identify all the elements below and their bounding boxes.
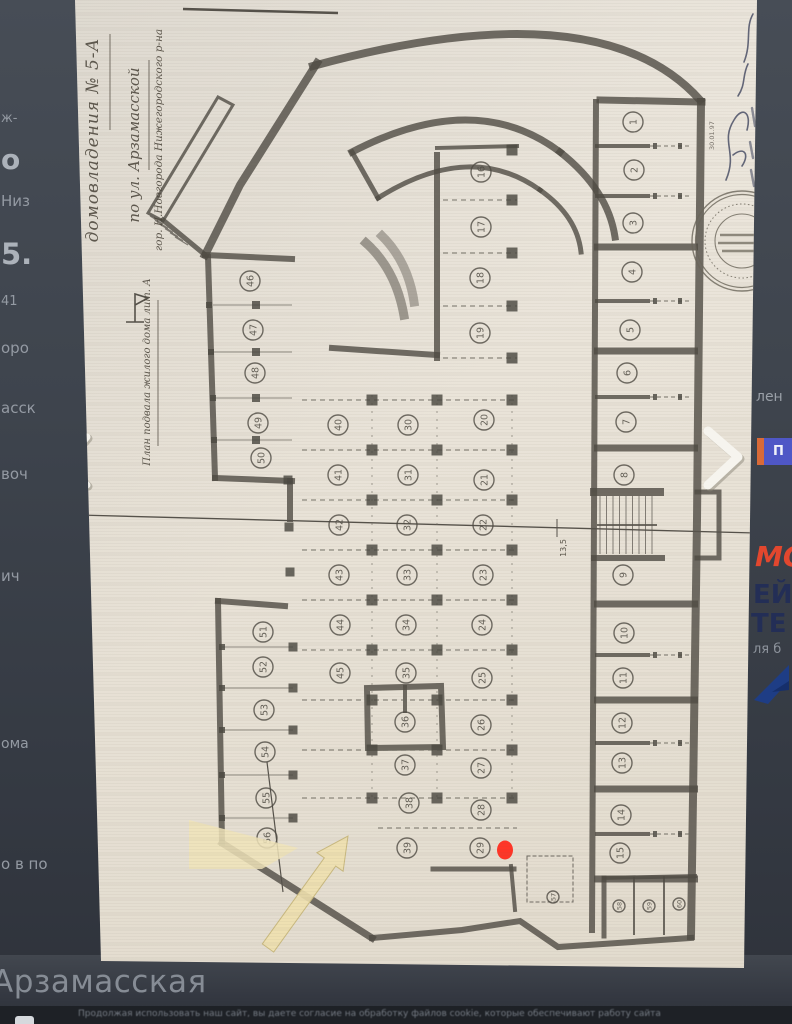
stall-number: 6 [617, 363, 637, 383]
svg-text:27: 27 [476, 762, 487, 774]
svg-text:1: 1 [628, 119, 639, 125]
stall-number: 38 [399, 793, 419, 813]
stall-number: 25 [472, 668, 492, 688]
svg-text:15: 15 [615, 847, 626, 859]
stall-number: 37 [395, 755, 415, 775]
svg-text:51: 51 [258, 626, 269, 638]
svg-text:11: 11 [618, 672, 629, 684]
page-text-fragment: ома [1, 737, 29, 751]
stall-number: 7 [616, 412, 636, 432]
svg-text:46: 46 [245, 275, 256, 287]
page-text-fragment: асск [1, 401, 36, 416]
page-text-fragment: Низ [1, 194, 30, 209]
handwritten-signature [726, 14, 755, 186]
stall-number: 5 [620, 320, 640, 340]
stall-number: 9 [613, 565, 633, 585]
svg-text:43: 43 [334, 569, 345, 581]
floorplan-image[interactable]: 1234567891011121314151617181920212223242… [0, 0, 792, 1024]
stall-number: 1 [623, 112, 643, 132]
stall-number: 28 [471, 800, 491, 820]
svg-text:59: 59 [645, 902, 653, 910]
stall-number: 34 [396, 615, 416, 635]
prev-image-button[interactable] [56, 428, 96, 492]
svg-text:23: 23 [478, 569, 489, 581]
location-marker [497, 841, 513, 860]
svg-text:8: 8 [619, 472, 630, 478]
stall-number: 20 [474, 410, 494, 430]
stall-number: 46 [240, 271, 260, 291]
svg-text:16: 16 [476, 166, 487, 178]
svg-text:32: 32 [402, 519, 413, 531]
svg-text:14: 14 [616, 809, 627, 821]
svg-text:19: 19 [475, 327, 486, 339]
stall-number: 43 [329, 565, 349, 585]
svg-text:5: 5 [625, 327, 636, 333]
page-text-fragment: ич [1, 569, 20, 584]
stall-number: 47 [243, 320, 263, 340]
stall-number: 26 [471, 715, 491, 735]
stall-number: 10 [614, 623, 634, 643]
svg-text:33: 33 [402, 569, 413, 581]
stall-number: 51 [253, 622, 273, 642]
page-text-fragment: воч [1, 467, 28, 482]
svg-text:по ул. Арзамасской: по ул. Арзамасской [125, 67, 143, 222]
stall-number: 44 [330, 615, 350, 635]
svg-text:13: 13 [617, 757, 628, 769]
stall-number: 48 [245, 363, 265, 383]
banner-button[interactable]: П [757, 438, 792, 465]
page-text-fragment: о [1, 146, 20, 174]
stall-number: 23 [473, 565, 493, 585]
svg-text:58: 58 [615, 902, 623, 910]
svg-text:12: 12 [617, 717, 628, 729]
stall-number: 2 [624, 160, 644, 180]
stall-number: 19 [470, 323, 490, 343]
banner-word-2: ЕЙ [753, 580, 792, 610]
svg-text:21: 21 [479, 474, 490, 486]
street-caption: Арзамасская [0, 964, 207, 1000]
stall-number: 36 [395, 712, 415, 732]
stall-number: 15 [610, 843, 630, 863]
plan-titles: домовладения № 5-А по ул. Арзамасской го… [83, 29, 568, 557]
page-text-fragment: о в по [1, 857, 48, 872]
svg-text:24: 24 [477, 619, 488, 631]
svg-text:20: 20 [479, 414, 490, 426]
stall-number: 24 [472, 615, 492, 635]
stamp-date: 30.01.97 [708, 121, 716, 150]
svg-text:домовладения № 5-А: домовладения № 5-А [83, 38, 103, 243]
stall-number: 53 [254, 700, 274, 720]
svg-text:31: 31 [403, 469, 414, 481]
stall-number: 4 [622, 262, 642, 282]
svg-text:38: 38 [404, 797, 415, 809]
stall-number: 33 [397, 565, 417, 585]
svg-text:60: 60 [675, 900, 683, 908]
stall-number: 50 [251, 448, 271, 468]
stall-number: 59 [643, 900, 655, 912]
svg-text:гор. Н.Новгорода Нижегородског: гор. Н.Новгорода Нижегородского р-на [153, 29, 165, 251]
svg-text:47: 47 [248, 324, 259, 336]
right-rail-fragment: лен [756, 389, 783, 405]
svg-text:6: 6 [622, 370, 633, 376]
stall-number: 45 [330, 663, 350, 683]
svg-text:48: 48 [250, 367, 261, 379]
svg-text:3: 3 [628, 220, 639, 226]
notary-stamp [692, 191, 792, 291]
stall-number: 29 [470, 838, 490, 858]
svg-text:4: 4 [627, 269, 638, 275]
svg-text:50: 50 [256, 452, 267, 464]
stall-number: 11 [613, 668, 633, 688]
svg-text:26: 26 [476, 719, 487, 731]
svg-text:42: 42 [334, 519, 345, 531]
banner-subtext: ля б [753, 642, 781, 657]
stall-number: 21 [474, 470, 494, 490]
banner-button-label: П [764, 438, 792, 465]
svg-text:40: 40 [333, 419, 344, 431]
stall-number: 55 [256, 788, 276, 808]
stall-number: 39 [397, 838, 417, 858]
stall-number: 60 [673, 898, 685, 910]
stall-number: 42 [329, 515, 349, 535]
stall-number: 18 [470, 268, 490, 288]
stall-number: 8 [614, 465, 634, 485]
svg-text:9: 9 [618, 572, 629, 578]
svg-text:35: 35 [401, 667, 412, 679]
stall-number: 17 [471, 217, 491, 237]
svg-text:30: 30 [403, 419, 414, 431]
stall-number: 3 [623, 213, 643, 233]
svg-text:План подвала жилого дома лит.: План подвала жилого дома лит. А [142, 278, 153, 466]
svg-text:37: 37 [400, 759, 411, 771]
svg-text:10: 10 [619, 627, 630, 639]
stall-number: 35 [396, 663, 416, 683]
svg-text:39: 39 [402, 842, 413, 854]
svg-text:57: 57 [549, 893, 557, 901]
svg-text:17: 17 [476, 221, 487, 233]
svg-text:54: 54 [260, 746, 271, 758]
stall-number: 40 [328, 415, 348, 435]
stall-number: 14 [611, 805, 631, 825]
svg-text:28: 28 [476, 804, 487, 816]
stall-number: 13 [612, 753, 632, 773]
screen: Арзамасская Продолжая использовать наш с… [0, 0, 792, 1024]
cookie-bar-text: Продолжая использовать наш сайт, вы дает… [78, 1009, 661, 1019]
svg-text:44: 44 [335, 619, 346, 631]
page-text-fragment: ж- [1, 112, 17, 125]
stall-number: 41 [328, 465, 348, 485]
next-image-button[interactable] [698, 422, 748, 492]
svg-text:13,5: 13,5 [559, 539, 568, 557]
svg-text:55: 55 [261, 792, 272, 804]
banner-word-3: ТЕ [751, 609, 787, 639]
stall-number: 31 [398, 465, 418, 485]
stall-number: 54 [255, 742, 275, 762]
stall-number: 27 [471, 758, 491, 778]
stall-number: 49 [248, 413, 268, 433]
stall-number: 12 [612, 713, 632, 733]
stall-number: 52 [253, 657, 273, 677]
svg-text:22: 22 [478, 519, 489, 531]
page-text-fragment: оро [1, 341, 29, 356]
svg-text:45: 45 [335, 667, 346, 679]
svg-text:29: 29 [475, 842, 486, 854]
svg-text:34: 34 [401, 619, 412, 631]
svg-text:7: 7 [621, 419, 632, 425]
cookie-bar: Продолжая использовать наш сайт, вы дает… [0, 1006, 792, 1024]
svg-text:2: 2 [629, 167, 640, 173]
page-text-fragment: 41 [1, 295, 18, 308]
stall-number: 32 [397, 515, 417, 535]
stall-number: 58 [613, 900, 625, 912]
page-text-fragment: 5. [1, 240, 32, 269]
banner-arrow-icon [752, 662, 792, 706]
svg-text:36: 36 [400, 716, 411, 728]
banner-button-accent [757, 438, 764, 465]
banner-word-1: МО [755, 540, 792, 573]
svg-text:53: 53 [259, 704, 270, 716]
svg-text:52: 52 [258, 661, 269, 673]
stall-number: 30 [398, 415, 418, 435]
svg-text:41: 41 [333, 469, 344, 481]
svg-text:25: 25 [477, 672, 488, 684]
svg-text:18: 18 [475, 272, 486, 284]
stall-number: 57 [547, 891, 559, 903]
svg-text:49: 49 [253, 417, 264, 429]
cookie-bar-icon[interactable] [15, 1016, 34, 1024]
